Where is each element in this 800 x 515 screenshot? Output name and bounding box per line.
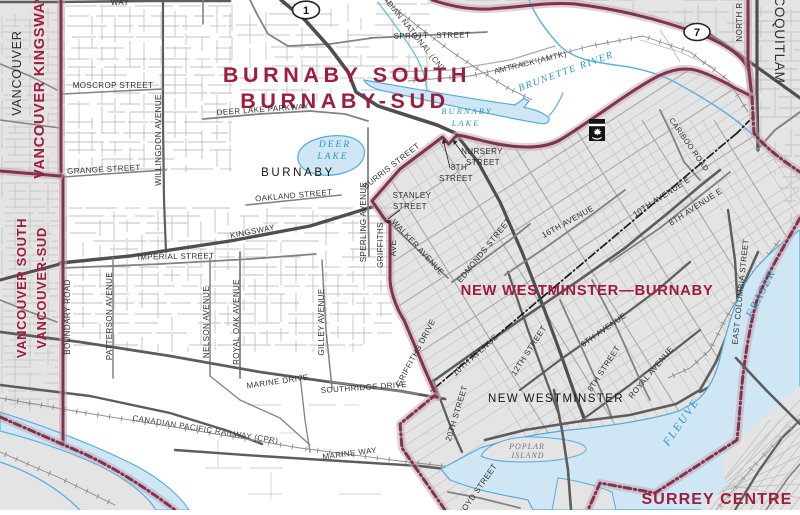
svg-text:STREET: STREET — [393, 202, 427, 211]
svg-text:BOUNDARY ROAD: BOUNDARY ROAD — [63, 279, 72, 355]
svg-text:BURNABY SOUTH: BURNABY SOUTH — [223, 63, 471, 87]
svg-text:STANLEY: STANLEY — [393, 191, 432, 200]
svg-text:WAY: WAY — [111, 0, 130, 7]
svg-text:VANCOUVER-SUD: VANCOUVER-SUD — [34, 227, 49, 349]
svg-text:COQUITLAM: COQUITLAM — [772, 0, 787, 84]
svg-text:GILLEY AVENUE: GILLEY AVENUE — [317, 288, 326, 355]
svg-text:STREET: STREET — [466, 158, 500, 167]
svg-text:POPLAR: POPLAR — [508, 442, 545, 451]
svg-text:SURREY CENTRE: SURREY CENTRE — [642, 491, 793, 508]
svg-text:WILLINGDON AVENUE: WILLINGDON AVENUE — [154, 94, 163, 186]
svg-text:NEW WESTMINSTER: NEW WESTMINSTER — [488, 393, 624, 405]
svg-text:VANCOUVER: VANCOUVER — [10, 30, 24, 115]
svg-text:VANCOUVER SOUTH: VANCOUVER SOUTH — [14, 218, 29, 358]
svg-text:ROYAL OAK AVENUE: ROYAL OAK AVENUE — [232, 279, 241, 365]
svg-text:ISLAND: ISLAND — [510, 451, 544, 460]
svg-text:STREET: STREET — [439, 174, 473, 183]
svg-text:1: 1 — [303, 5, 309, 17]
svg-text:VANCOUVER KINGSWAY: VANCOUVER KINGSWAY — [32, 0, 48, 179]
svg-text:IMPERIAL STREET: IMPERIAL STREET — [137, 251, 214, 261]
svg-text:MOSCROP STREET: MOSCROP STREET — [73, 81, 154, 90]
svg-text:LAKE: LAKE — [316, 152, 348, 162]
svg-text:BURNABY: BURNABY — [261, 167, 335, 179]
svg-text:GRIFFITHS: GRIFFITHS — [376, 222, 385, 268]
svg-text:BURNABY: BURNABY — [441, 106, 492, 116]
svg-text:7: 7 — [694, 27, 700, 39]
svg-text:NELSON AVENUE: NELSON AVENUE — [202, 286, 211, 358]
svg-text:SPERLING AVENUE: SPERLING AVENUE — [359, 182, 368, 263]
svg-text:LAKE: LAKE — [451, 118, 481, 128]
svg-text:SPROTT STREET: SPROTT STREET — [394, 30, 471, 40]
svg-text:NURSERY: NURSERY — [461, 147, 503, 156]
svg-text:NEW WESTMINSTER—BURNABY: NEW WESTMINSTER—BURNABY — [461, 283, 714, 299]
svg-text:NORTH R: NORTH R — [735, 2, 744, 41]
svg-text:PATTERSON AVENUE: PATTERSON AVENUE — [105, 272, 114, 360]
svg-text:AVE: AVE — [389, 240, 398, 257]
svg-text:8TH: 8TH — [451, 163, 467, 172]
svg-text:DEER: DEER — [318, 140, 351, 150]
